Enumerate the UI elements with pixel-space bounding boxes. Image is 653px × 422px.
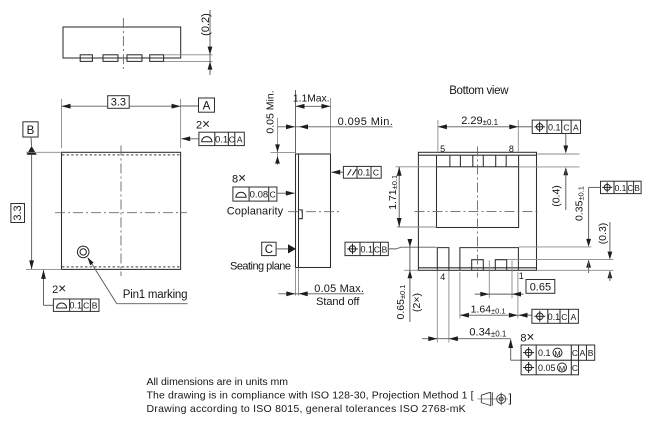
svg-text:C: C [83,301,89,311]
svg-text:A: A [580,348,586,358]
svg-text:C: C [229,134,235,144]
svg-text:0.65: 0.65 [530,281,551,293]
svg-text:A: A [237,134,243,144]
svg-text:C: C [572,363,578,373]
svg-text:8×: 8× [520,329,534,344]
svg-text:(0.3): (0.3) [597,223,609,245]
svg-text:Drawing according to ISO 8015,: Drawing according to ISO 8015, general t… [147,403,466,415]
svg-text:1.1Max.: 1.1Max. [293,92,330,104]
svg-text:5: 5 [440,144,445,154]
svg-text:C: C [563,123,569,133]
svg-text:B: B [382,245,388,255]
svg-text:0.095 Min.: 0.095 Min. [338,116,393,128]
svg-text:2×: 2× [196,116,210,131]
svg-text:A: A [571,312,577,322]
svg-text:B: B [27,125,35,137]
svg-text:A: A [203,101,211,113]
svg-text:A: A [573,123,579,133]
svg-text:B: B [588,348,594,358]
svg-text:M: M [559,364,565,373]
svg-text:B: B [92,301,98,311]
svg-text:C: C [572,348,578,358]
svg-text:3.3: 3.3 [111,97,126,109]
svg-text:C: C [374,245,380,255]
svg-text:0.08: 0.08 [250,190,269,201]
svg-text:0.1: 0.1 [548,312,561,322]
svg-text:0.1: 0.1 [538,348,551,358]
svg-text:(0.2): (0.2) [200,13,212,36]
svg-text:B: B [635,184,640,193]
svg-text:Pin1 marking: Pin1 marking [123,289,188,301]
svg-text:Bottom view: Bottom view [449,85,509,97]
svg-text:]: ] [509,391,512,405]
svg-text:C: C [561,312,567,322]
svg-text:Coplanarity: Coplanarity [227,206,284,218]
svg-text:0.1: 0.1 [70,301,83,311]
svg-text:3.3: 3.3 [12,205,24,220]
svg-text:0.1: 0.1 [358,168,371,178]
svg-text:(2×): (2×) [411,293,423,312]
svg-text:0.1: 0.1 [548,123,561,133]
svg-text:1: 1 [519,271,524,281]
svg-text:C: C [373,168,379,178]
svg-text:8×: 8× [232,171,246,186]
svg-text:Seating plane: Seating plane [230,260,291,272]
svg-text:0.05 Min.: 0.05 Min. [265,90,277,133]
svg-text:C: C [265,244,273,256]
svg-text:C: C [627,184,633,193]
svg-text:The drawing is in compliance w: The drawing is in compliance with ISO 12… [147,390,474,402]
svg-text:(0.4): (0.4) [550,185,562,207]
svg-text:0.1: 0.1 [615,183,627,193]
svg-text:8: 8 [509,144,514,154]
svg-text:4: 4 [440,272,445,282]
svg-text:M: M [554,349,560,358]
svg-text:2×: 2× [52,281,66,296]
svg-text:C: C [270,190,276,200]
svg-text:0.05 Max.: 0.05 Max. [314,283,364,295]
svg-text:0.1: 0.1 [215,134,228,145]
svg-text:All dimensions are in units mm: All dimensions are in units mm [147,376,289,388]
svg-text:0.05: 0.05 [538,363,556,373]
svg-text:Stand off: Stand off [316,296,360,308]
svg-text:0.1: 0.1 [360,245,373,255]
